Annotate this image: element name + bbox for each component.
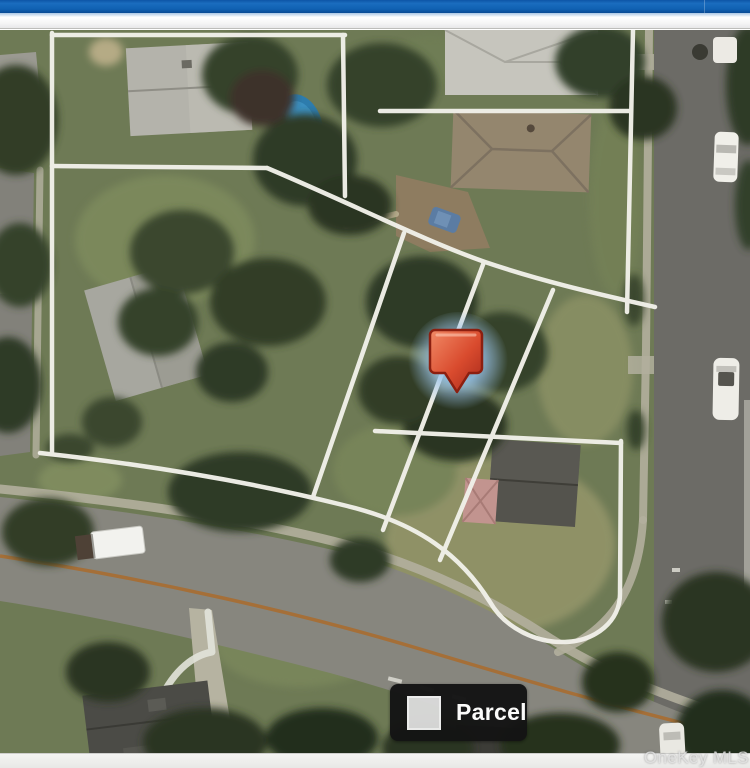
aerial-map[interactable] <box>0 30 750 753</box>
car <box>712 358 739 420</box>
window-chrome <box>0 0 750 30</box>
toolbar-strip <box>0 13 750 29</box>
shed-roof <box>462 478 498 524</box>
map-pin-icon[interactable] <box>403 306 513 416</box>
bottom-border-strip <box>0 753 750 768</box>
car <box>713 132 739 183</box>
house-roof <box>487 439 581 527</box>
title-bar <box>0 0 750 13</box>
map-viewport[interactable] <box>0 30 750 753</box>
parcel-legend: Parcel <box>390 684 527 741</box>
mls-watermark: OneKey MLS <box>644 748 749 768</box>
house-roof <box>451 110 592 193</box>
legend-label: Parcel <box>456 699 527 726</box>
parcel-swatch-icon <box>407 696 441 730</box>
